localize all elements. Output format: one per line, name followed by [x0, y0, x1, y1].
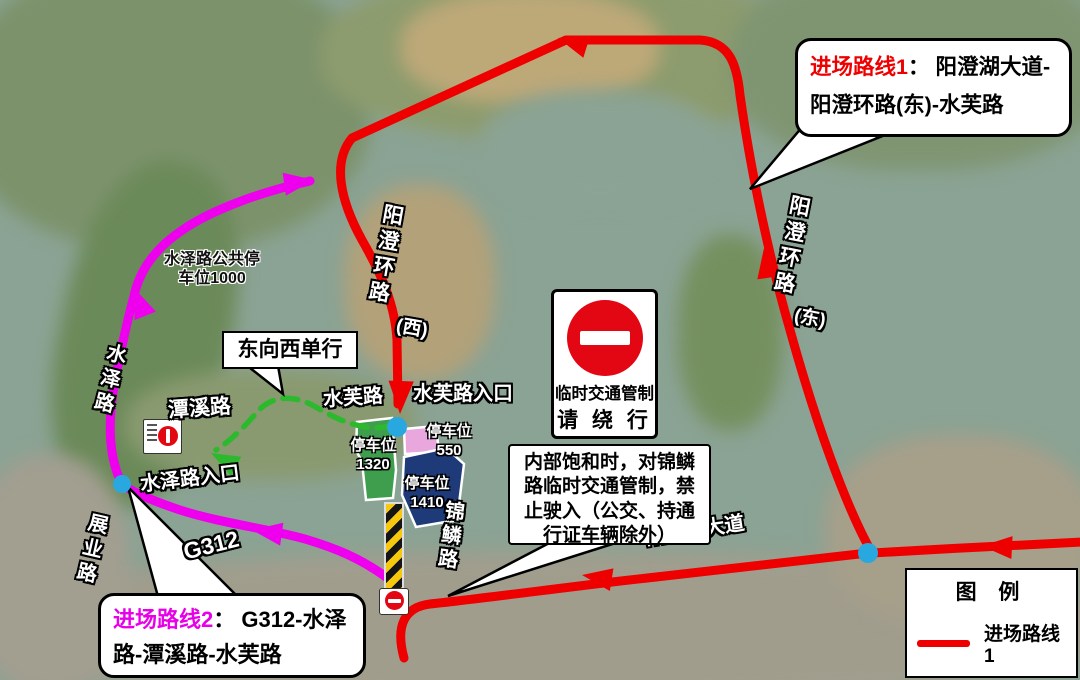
poi-label-shuifu-entrance: 水芙路入口: [413, 383, 513, 406]
poi-name: 水芙路入口: [413, 383, 513, 405]
restriction-text: 内部饱和时，对锦鳞路临时交通管制，禁止驶入（公交、持通行证车辆除外）: [524, 452, 695, 546]
no-entry-icon: [385, 591, 404, 610]
shuize-entrance-dot: [113, 475, 131, 493]
oneway-callout: 东向西单行: [222, 331, 358, 369]
route2-callout: 进场路线2： G312-水泽路-潭溪路-水芙路: [98, 593, 366, 678]
route1-arrow-icon: [981, 535, 1012, 560]
mini-sign-text-lines: [147, 424, 157, 441]
road-name: 潭溪路: [167, 395, 231, 422]
mini-no-entry-sign: [379, 588, 409, 615]
parking-label-value: 1410: [390, 494, 464, 513]
parking-label-text: 停车位: [413, 423, 485, 442]
road-label-shuifu: 水芙路: [322, 385, 383, 412]
legend: 图 例 进场路线1 进场路线2: [905, 568, 1078, 678]
route1-accent: 进场路线1: [810, 55, 908, 79]
parking-label-1410: 停车位 1410: [390, 475, 464, 513]
legend-label: 进场路线1: [984, 619, 1066, 668]
sign-line2: 请 绕 行: [554, 404, 655, 434]
road-name: (西): [394, 315, 429, 341]
no-entry-icon: [158, 426, 178, 446]
oneway-text: 东向西单行: [238, 338, 343, 361]
mini-control-sign: [143, 419, 182, 454]
road-closure-barrier: [384, 502, 404, 592]
route1-line-swatch: [917, 640, 970, 647]
route1-arrow-icon: [387, 381, 413, 415]
poi-name: 水泽路公共停车位1000: [164, 251, 260, 287]
parking-label-text: 停车位: [334, 437, 412, 456]
road-label-tanxi: 潭溪路: [167, 395, 232, 423]
parking-label-value: 550: [413, 442, 485, 461]
parking-label-1320: 停车位 1320: [334, 437, 412, 475]
restriction-callout: 内部饱和时，对锦鳞路临时交通管制，禁止驶入（公交、持通行证车辆除外）: [508, 444, 711, 545]
parking-label-value: 1320: [334, 456, 412, 475]
route1-avenue-path: [401, 553, 868, 658]
shuifu-entrance-dot: [387, 417, 407, 437]
legend-item-route1: 进场路线1: [917, 619, 1066, 668]
route1-callout: 进场路线1： 阳澄湖大道-阳澄环路(东)-水芙路: [795, 38, 1072, 137]
no-entry-icon: [567, 300, 643, 376]
road-name: 水芙路: [322, 385, 383, 411]
parking-label-text: 停车位: [390, 475, 464, 494]
legend-title: 图 例: [917, 576, 1066, 606]
avenue-junction-dot: [858, 543, 878, 563]
route2-accent: 进场路线2: [113, 607, 213, 632]
poi-label-public-parking: 水泽路公共停车位1000: [160, 250, 264, 288]
sign-line1: 临时交通管制: [554, 380, 655, 404]
traffic-route-map: 阳澄环路 (西) 阳澄环路 (东) 水芙路 水芙路入口 潭溪路 水泽路 水泽路入…: [0, 0, 1080, 680]
parking-label-550: 停车位 550: [413, 423, 485, 461]
temporary-control-sign: 临时交通管制 请 绕 行: [551, 289, 658, 439]
